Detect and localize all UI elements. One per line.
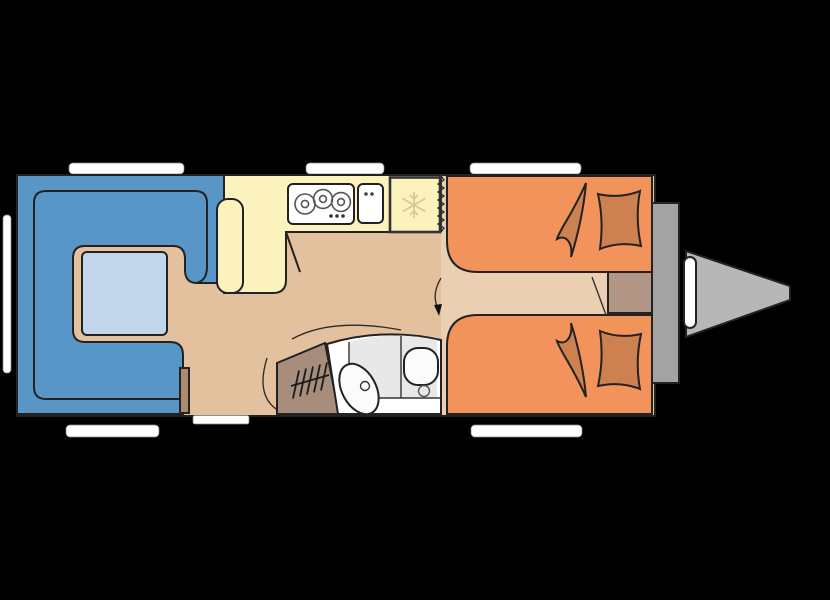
pillow-bottom [598, 331, 641, 389]
front-storage-wall [652, 203, 679, 383]
caravan-floorplan [0, 0, 830, 600]
seat-cushion [217, 199, 243, 293]
heater [180, 368, 189, 413]
bedside-cabinet [608, 272, 652, 313]
window [66, 425, 159, 437]
hob-knobs [329, 214, 345, 218]
window [69, 163, 184, 174]
entry-step [193, 416, 249, 425]
window [3, 215, 11, 373]
window [471, 425, 582, 437]
toilet [404, 348, 438, 385]
window [306, 163, 384, 174]
pillow-top [598, 191, 641, 249]
hitch-handle [684, 257, 696, 328]
window [470, 163, 581, 174]
floorplan-canvas [0, 0, 830, 600]
dinette-table [82, 252, 167, 335]
kitchen-sink [358, 184, 383, 223]
